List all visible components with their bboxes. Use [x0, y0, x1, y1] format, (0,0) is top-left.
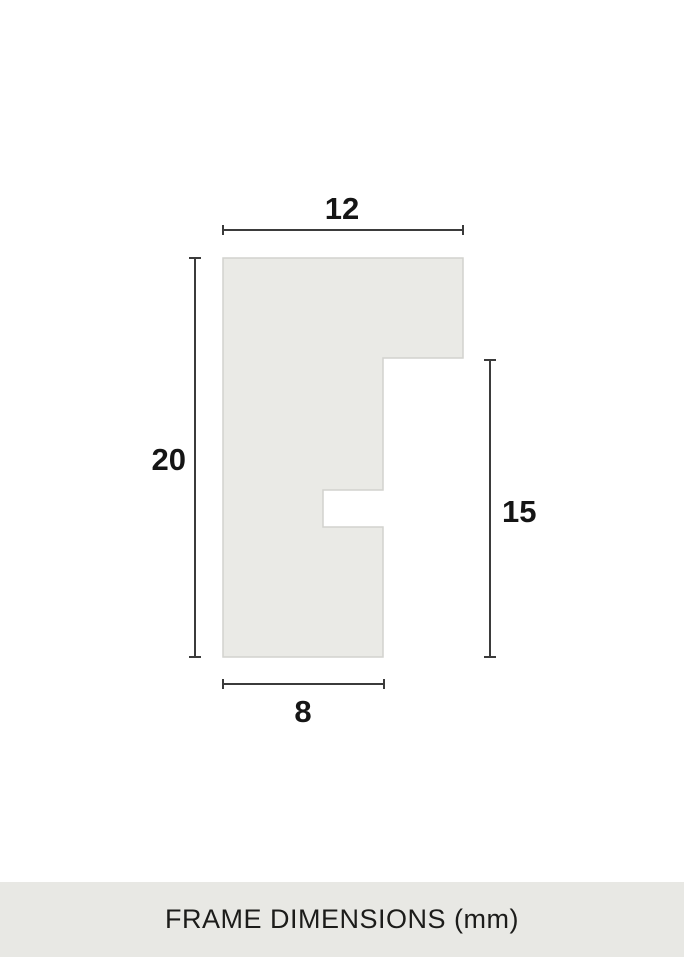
frame-dimensions-page: 12 20 15 8 FRAME DIMENSIONS (mm) — [0, 0, 684, 957]
frame-profile-diagram — [0, 0, 684, 882]
dimension-line-left — [189, 258, 201, 657]
dimension-line-top — [223, 225, 463, 235]
dimension-line-bottom — [223, 679, 384, 689]
footer-title: FRAME DIMENSIONS (mm) — [165, 904, 519, 935]
dimension-label-top-width: 12 — [282, 193, 402, 224]
footer-bar: FRAME DIMENSIONS (mm) — [0, 882, 684, 957]
frame-profile-shape — [223, 258, 463, 657]
dimension-line-right — [484, 360, 496, 657]
dimension-label-bottom-width: 8 — [243, 696, 363, 727]
dimension-label-left-height: 20 — [86, 444, 186, 475]
dimension-label-right-height: 15 — [502, 496, 602, 527]
